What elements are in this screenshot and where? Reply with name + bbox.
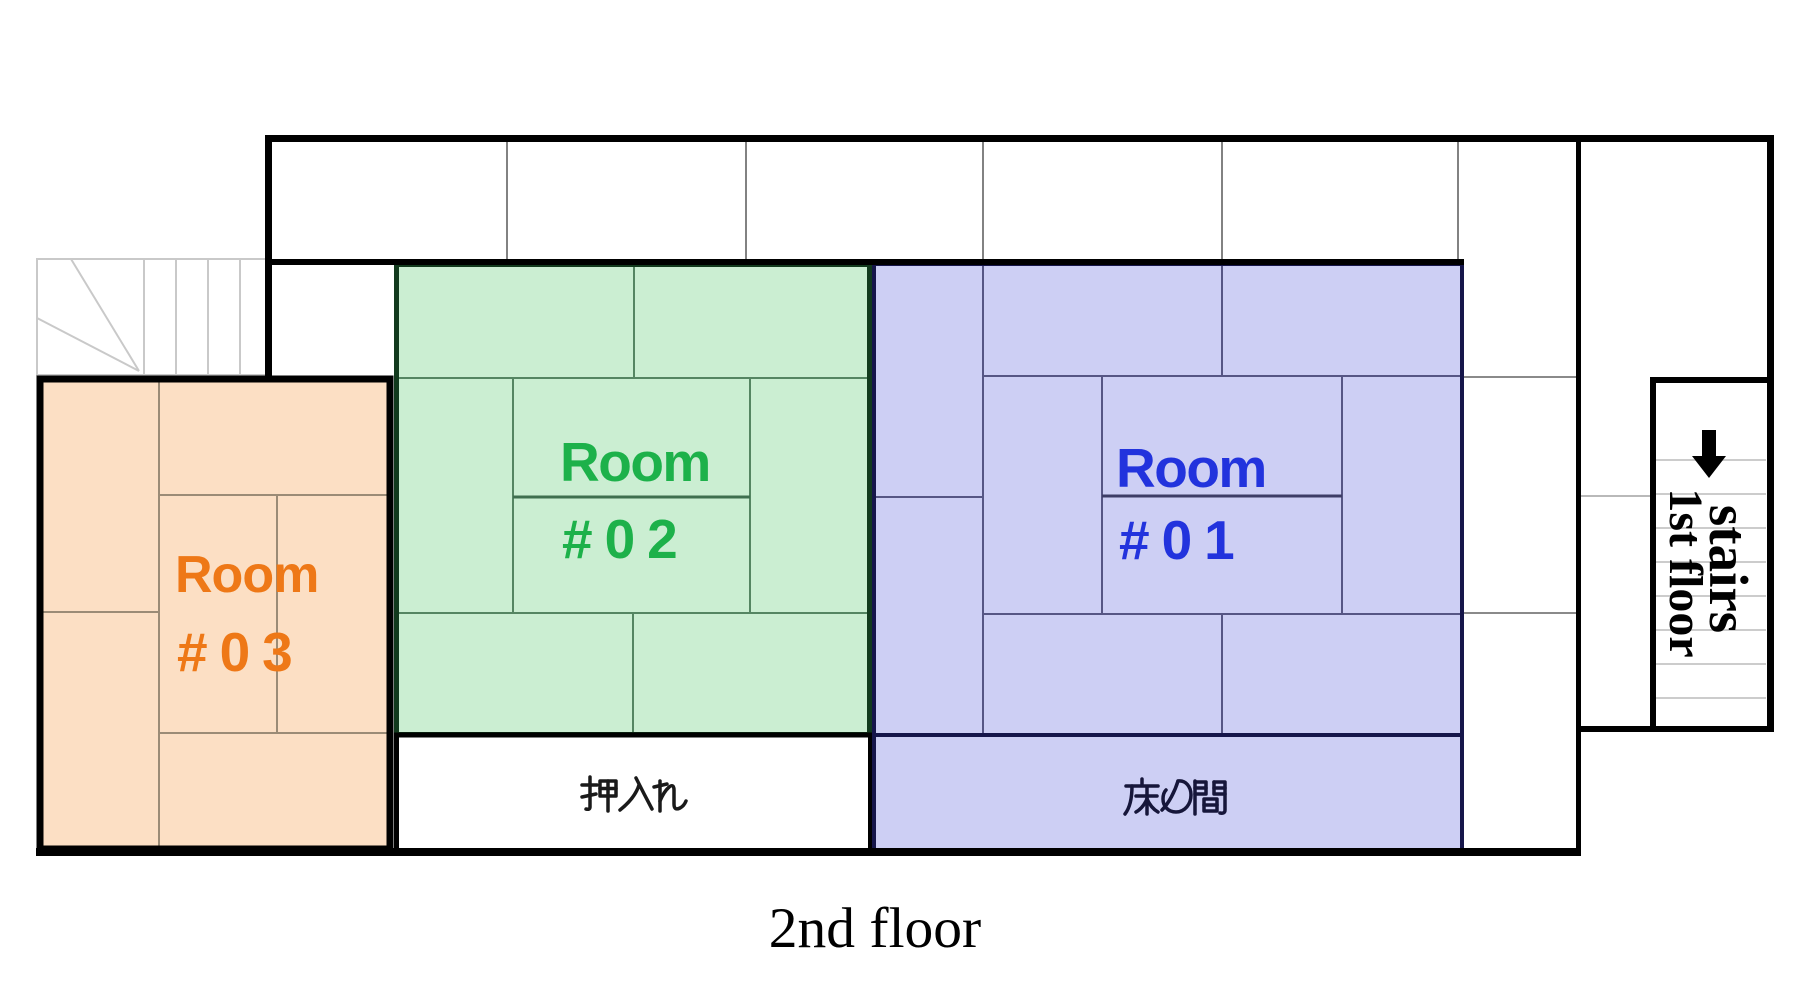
svg-text:#03: #03	[177, 621, 305, 683]
svg-text:1st floor: 1st floor	[1659, 488, 1712, 657]
svg-text:Room: Room	[175, 546, 318, 604]
svg-text:Room: Room	[560, 431, 710, 493]
svg-text:2nd floor: 2nd floor	[769, 897, 981, 960]
svg-text:Room: Room	[1116, 437, 1266, 499]
svg-text:#02: #02	[562, 508, 690, 570]
svg-text:#01: #01	[1119, 509, 1247, 571]
